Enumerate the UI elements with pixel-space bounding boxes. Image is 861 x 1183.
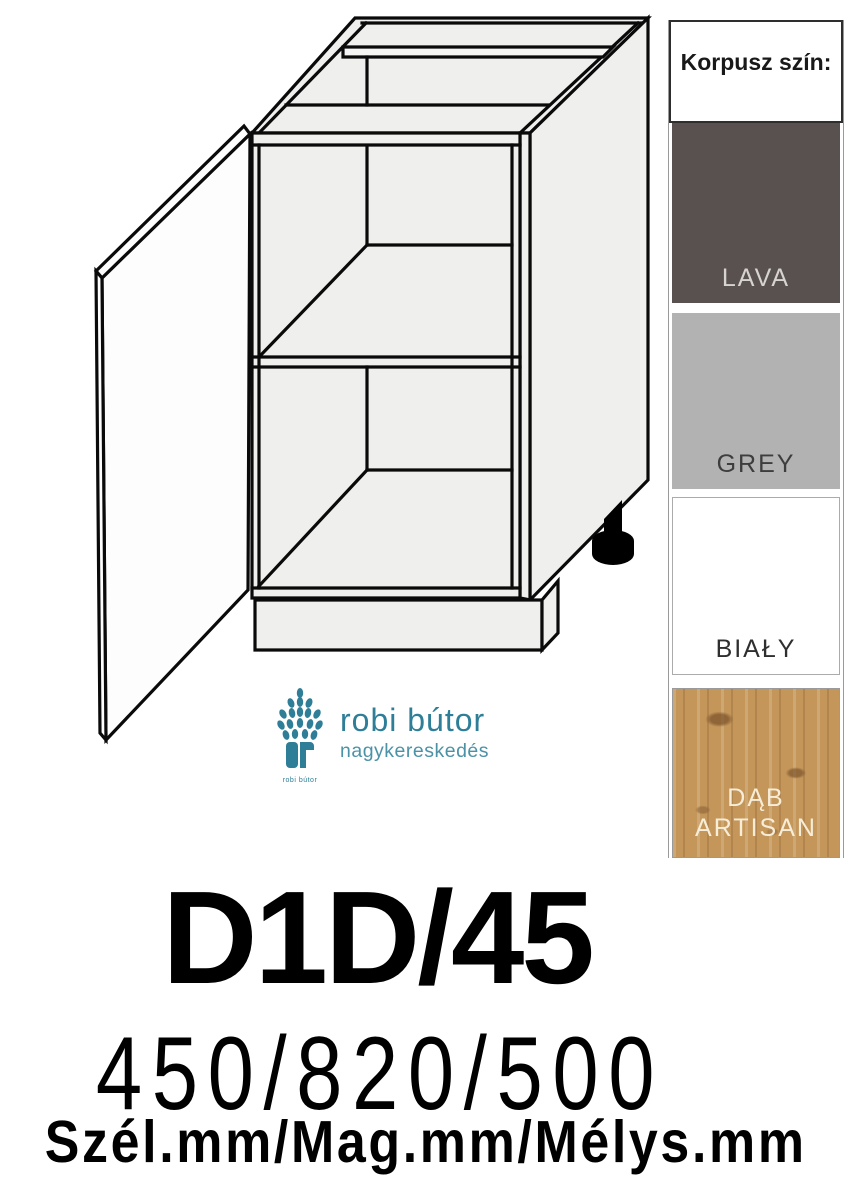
color-panel-header: Korpusz szín: [669,20,843,123]
logo-mark: robi bútor [272,686,328,784]
logo-name: robi bútor [340,704,489,738]
swatch-label: LAVA [722,263,790,303]
logo-text: robi bútor nagykereskedés [340,704,489,763]
swatch-label: DĄB ARTISAN [691,783,821,857]
swatch-label: BIAŁY [716,634,797,674]
cabinet-plinth [255,600,542,650]
swatch-bialy[interactable]: BIAŁY [672,497,840,675]
logo-caption: robi bútor [272,777,328,784]
cabinet-door-face [102,134,250,740]
product-code: D1D/45 [0,872,754,1004]
swatch-grey[interactable]: GREY [672,313,840,489]
cabinet-top-rail [343,47,613,57]
color-panel-title: Korpusz szín: [681,49,832,76]
product-dimensions-caption: Szél.mm/Mag.mm/Mélys.mm [45,1113,701,1172]
logo-subtitle: nagykereskedés [340,740,489,763]
swatch-dab-artisan[interactable]: DĄB ARTISAN [672,688,840,858]
tree-icon [272,686,328,770]
product-sheet: { "product": { "code": "D1D/45", "dimens… [0,0,861,1183]
brand-logo: robi bútor robi bútor nagykereskedés [272,686,489,784]
color-panel: Korpusz szín: LAVA GREY BIAŁY DĄB ARTISA… [668,20,844,858]
swatch-label: GREY [717,449,796,489]
swatch-lava[interactable]: LAVA [672,123,840,303]
